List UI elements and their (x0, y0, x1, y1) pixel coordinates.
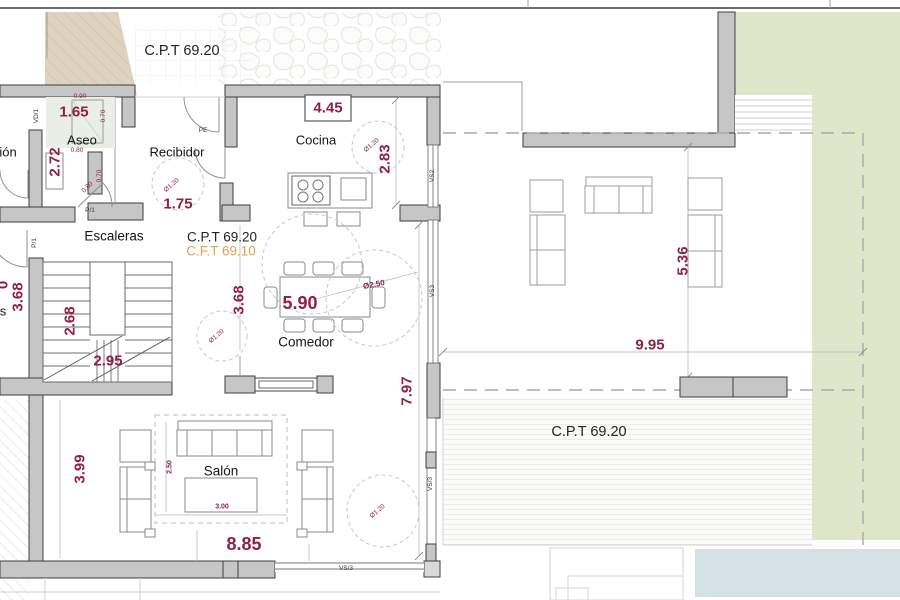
level-label-mid-cpt: C.P.T 69.20 (187, 230, 257, 244)
outdoor-table (688, 178, 722, 210)
dim-east-h: 7.97 (400, 376, 415, 405)
lawn-right-strip (812, 12, 900, 540)
dim-recibidor: 1.75 (163, 197, 192, 212)
dim-cocina-h: 2.83 (378, 144, 393, 173)
tag-vs3-right: VS/3 (428, 477, 435, 491)
dim-salon-in-h: 2.50 (167, 460, 174, 474)
low-wall-right (317, 376, 333, 393)
tag-vd1: VD/1 (34, 109, 41, 123)
kitchen-island (288, 173, 372, 226)
stool (337, 212, 360, 226)
dim-left-h: 3.68 (11, 282, 26, 311)
room-label-salon: Salón (204, 464, 239, 478)
room-label-recibidor: Recibidor (150, 146, 205, 159)
garden-steps (735, 95, 812, 133)
level-label-terrace: C.P.T 69.20 (551, 425, 626, 440)
tag-p1-b: P/1 (32, 238, 39, 248)
tag-vs3-bottom: VS/3 (339, 566, 353, 573)
room-label-comedor: Comedor (278, 335, 334, 349)
deck (443, 398, 812, 545)
dim-terrace-w: 9.95 (635, 338, 664, 353)
dim-stairs-w: 2.95 (93, 354, 122, 369)
low-wall-left (225, 376, 255, 393)
dim-small-090: 0.90 (74, 94, 87, 101)
dim-aseo-w: 1.65 (59, 105, 88, 120)
floorplan-graphics (0, 0, 900, 600)
dim-terrace-h: 5.36 (676, 246, 691, 275)
tag-p1-a: P/1 (85, 208, 95, 215)
tag-pe: PE (199, 128, 208, 135)
dim-salon-in-w: 3.00 (215, 504, 229, 511)
dim-small-080-b: 0.80 (71, 148, 84, 155)
room-label-cocina: Cocina (296, 134, 336, 147)
dim-salon-w: 8.85 (226, 535, 261, 553)
dim-aseo-h: 2.72 (48, 147, 63, 176)
outdoor-table (530, 180, 563, 212)
dim-stairs-r: 3.68 (232, 285, 247, 314)
level-label-mid-cft: C.F.T 69.10 (186, 244, 256, 258)
side-table (302, 430, 333, 462)
dim-salon-h: 3.99 (73, 454, 88, 483)
level-label-top: C.P.T 69.20 (144, 44, 219, 59)
dim-small-070-a: 0.70 (101, 110, 108, 123)
sofa (187, 430, 262, 456)
room-label-partial: ión (0, 146, 17, 159)
outdoor-set (530, 177, 722, 287)
floor-plan: C.P.T 69.20 C.P.T 69.20 C.F.T 69.10 C.P.… (0, 0, 900, 600)
pool (695, 549, 900, 597)
north-building (443, 12, 735, 147)
tag-vs2: VS2 (430, 170, 437, 182)
dim-small-070-b: 0.70 (97, 170, 104, 183)
pool-area (550, 548, 900, 600)
room-label-aseo: Aseo (67, 134, 97, 147)
label-partial-s: s (0, 305, 6, 318)
dim-comedor-w: 5.90 (282, 294, 317, 312)
dim-stairs-h: 2.68 (63, 306, 78, 335)
dim-cocina-w: 4.45 (313, 101, 342, 116)
side-table (120, 430, 151, 462)
tag-vs3: VS3 (430, 285, 437, 297)
room-label-escaleras: Escaleras (84, 229, 143, 243)
dim-partial-0: 0 (0, 281, 11, 289)
ramp-hatch (45, 12, 137, 95)
